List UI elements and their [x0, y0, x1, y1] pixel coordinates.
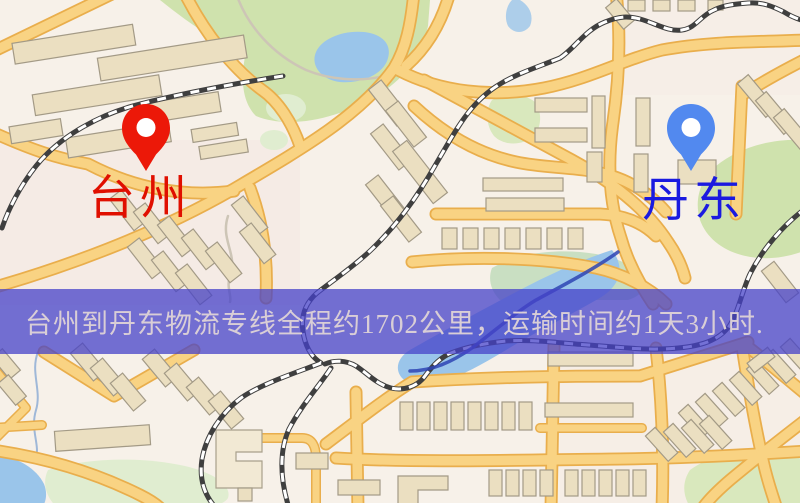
route-info-text: 台州到丹东物流专线全程约1702公里，运输时间约1天3小时.: [25, 302, 764, 341]
origin-pin-shape: [122, 104, 170, 171]
origin-city-label: 台州: [88, 176, 192, 223]
route-map: 台州到丹东物流专线全程约1702公里，运输时间约1天3小时. 台州 丹东: [0, 0, 800, 503]
destination-city-label: 丹东: [642, 178, 746, 225]
stream-line: [34, 352, 38, 458]
destination-pin-icon: [663, 101, 719, 175]
map-canvas: [0, 0, 800, 503]
destination-pin-hole: [682, 118, 701, 137]
origin-pin-hole: [137, 118, 156, 137]
destination-pin-shape: [667, 104, 715, 171]
origin-pin-icon: [118, 101, 174, 175]
route-info-banner: 台州到丹东物流专线全程约1702公里，运输时间约1天3小时.: [0, 289, 800, 354]
